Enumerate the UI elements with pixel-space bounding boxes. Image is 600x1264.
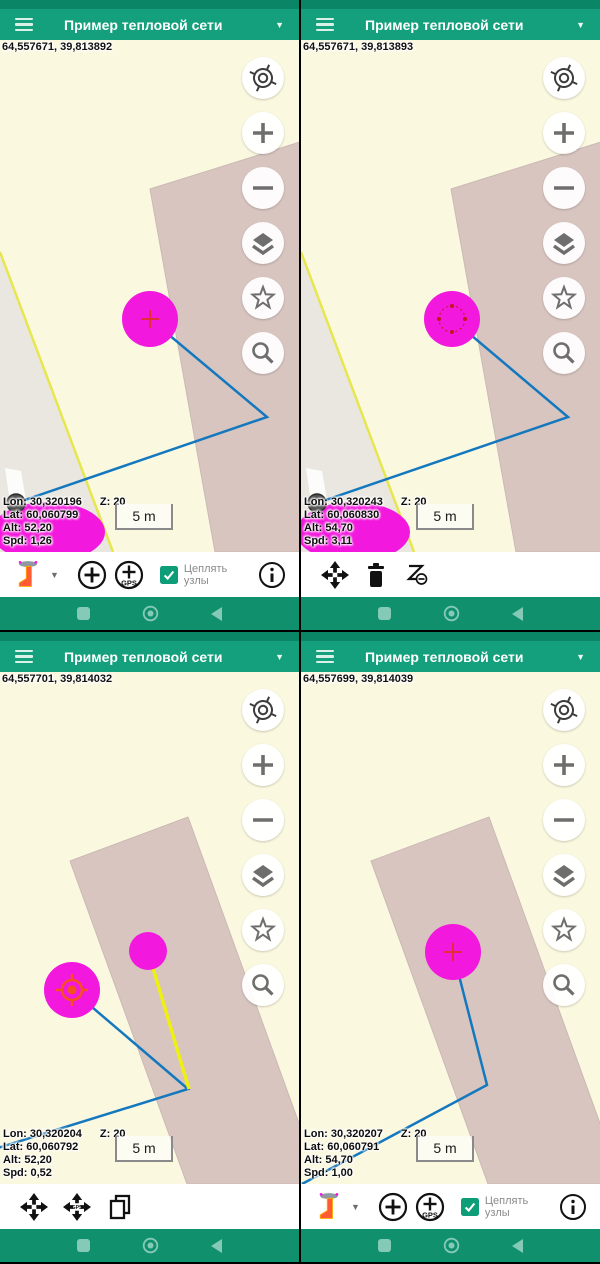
status-bar [301, 632, 600, 641]
lon-value: Lon: 30,320207 [304, 1128, 383, 1141]
edit-toolbar: ▼ GPS Цеплятьузлы [0, 552, 299, 597]
move-node-button[interactable] [321, 561, 349, 589]
app-bar: Пример тепловой сети ▼ [301, 641, 600, 672]
position-info: Lon: 30,320196Z: 20 Lat: 60,060799 Alt: … [3, 496, 126, 548]
my-location-button[interactable] [242, 57, 284, 99]
scale-bar: 5 m [115, 1136, 173, 1162]
app-title: Пример тепловой сети [365, 17, 576, 33]
speed-value: Spd: 3,11 [304, 535, 427, 548]
zoom-out-button[interactable] [543, 799, 585, 841]
lon-value: Lon: 30,320204 [3, 1128, 82, 1141]
menu-icon[interactable] [316, 650, 334, 664]
add-point-gps-button[interactable]: GPS [415, 1192, 445, 1222]
position-info: Lon: 30,320204Z: 20 Lat: 60,060792 Alt: … [3, 1128, 126, 1180]
nav-recents-button[interactable] [77, 607, 90, 620]
nav-home-button[interactable] [443, 605, 460, 622]
alt-value: Alt: 52,20 [3, 522, 126, 535]
add-point-gps-button[interactable]: GPS [114, 560, 144, 590]
map-controls [242, 57, 284, 374]
nav-back-button[interactable] [211, 1239, 222, 1253]
menu-icon[interactable] [15, 650, 33, 664]
layers-button[interactable] [543, 854, 585, 896]
alt-value: Alt: 52,20 [3, 1154, 126, 1167]
add-point-button[interactable] [378, 1192, 408, 1222]
layers-button[interactable] [543, 222, 585, 264]
layers-button[interactable] [242, 222, 284, 264]
lat-value: Lat: 60,060792 [3, 1141, 126, 1154]
delete-node-button[interactable] [364, 562, 388, 588]
map-view[interactable]: 64,557699, 39,814039 Lon: 30,320207Z: 20… [301, 672, 600, 1184]
selection-toolbar [301, 552, 600, 597]
layers-button[interactable] [242, 854, 284, 896]
svg-text:GPS: GPS [121, 578, 137, 587]
map-view[interactable]: 64,557671, 39,813892 Lon: 30,320196Z: 20… [0, 40, 299, 552]
move-toolbar: GPS [0, 1184, 299, 1229]
favorites-star-button[interactable] [543, 277, 585, 319]
position-info: Lon: 30,320243Z: 20 Lat: 60,060830 Alt: … [304, 496, 427, 548]
svg-text:GPS: GPS [72, 1205, 83, 1211]
map-view[interactable]: 64,557701, 39,814032 Lon: 30,320204Z: 20… [0, 672, 299, 1184]
nav-back-button[interactable] [512, 1239, 523, 1253]
search-button[interactable] [242, 964, 284, 1006]
move-node-button[interactable] [20, 1193, 48, 1221]
info-button[interactable] [258, 561, 286, 589]
favorites-star-button[interactable] [242, 909, 284, 951]
nav-back-button[interactable] [211, 607, 222, 621]
snap-nodes-checkbox[interactable] [160, 566, 178, 584]
search-button[interactable] [543, 964, 585, 1006]
search-button[interactable] [242, 332, 284, 374]
status-bar [0, 632, 299, 641]
nav-home-button[interactable] [443, 1237, 460, 1254]
lat-value: Lat: 60,060799 [3, 509, 126, 522]
my-location-button[interactable] [543, 57, 585, 99]
zoom-in-button[interactable] [242, 744, 284, 786]
lon-value: Lon: 30,320196 [3, 496, 82, 509]
nav-back-button[interactable] [512, 607, 523, 621]
app-bar: Пример тепловой сети ▼ [0, 641, 299, 672]
phone-panel-3: Пример тепловой сети ▼ 64,557701, 39,814… [0, 632, 299, 1262]
title-dropdown-icon[interactable]: ▼ [275, 652, 284, 662]
cursor-coordinates: 64,557671, 39,813893 [303, 41, 413, 53]
android-nav-bar [301, 597, 600, 630]
move-node-gps-button[interactable]: GPS [63, 1193, 91, 1221]
android-nav-bar [0, 597, 299, 630]
zoom-in-button[interactable] [543, 112, 585, 154]
app-title: Пример тепловой сети [365, 649, 576, 665]
scale-bar: 5 m [416, 1136, 474, 1162]
alt-value: Alt: 54,70 [304, 1154, 427, 1167]
speed-value: Spd: 0,52 [3, 1167, 126, 1180]
app-bar: Пример тепловой сети ▼ [301, 9, 600, 40]
lat-value: Lat: 60,060791 [304, 1141, 427, 1154]
nav-home-button[interactable] [142, 1237, 159, 1254]
phone-panel-2: Пример тепловой сети ▼ 64,557671, 39,813… [301, 0, 600, 630]
title-dropdown-icon[interactable]: ▼ [275, 20, 284, 30]
svg-text:GPS: GPS [422, 1210, 438, 1219]
app-title: Пример тепловой сети [64, 649, 275, 665]
cursor-coordinates: 64,557699, 39,814039 [303, 673, 413, 685]
title-dropdown-icon[interactable]: ▼ [576, 652, 585, 662]
map-view[interactable]: 64,557671, 39,813893 Lon: 30,320243Z: 20… [301, 40, 600, 552]
menu-icon[interactable] [316, 18, 334, 32]
zoom-out-button[interactable] [242, 167, 284, 209]
info-button[interactable] [559, 1193, 587, 1221]
snap-nodes-label: Цеплятьузлы [485, 1195, 528, 1219]
status-bar [0, 0, 299, 9]
nav-recents-button[interactable] [77, 1239, 90, 1252]
cursor-coordinates: 64,557671, 39,813892 [2, 41, 112, 53]
lon-value: Lon: 30,320243 [304, 496, 383, 509]
map-controls [242, 689, 284, 1006]
cursor-coordinates: 64,557701, 39,814032 [2, 673, 112, 685]
object-type-dropdown-icon[interactable]: ▼ [351, 1202, 360, 1212]
favorites-star-button[interactable] [543, 909, 585, 951]
snap-nodes-label: Цеплятьузлы [184, 563, 227, 587]
app-bar: Пример тепловой сети ▼ [0, 9, 299, 40]
scale-bar: 5 m [416, 504, 474, 530]
nav-recents-button[interactable] [378, 607, 391, 620]
nav-home-button[interactable] [142, 605, 159, 622]
zoom-out-button[interactable] [242, 799, 284, 841]
edit-toolbar: ▼ GPS Цеплятьузлы [301, 1184, 600, 1229]
alt-value: Alt: 54,70 [304, 522, 427, 535]
speed-value: Spd: 1,26 [3, 535, 126, 548]
menu-icon[interactable] [15, 18, 33, 32]
favorites-star-button[interactable] [242, 277, 284, 319]
add-point-button[interactable] [77, 560, 107, 590]
lat-value: Lat: 60,060830 [304, 509, 427, 522]
android-nav-bar [301, 1229, 600, 1262]
search-button[interactable] [543, 332, 585, 374]
object-type-dropdown-icon[interactable]: ▼ [50, 570, 59, 580]
title-dropdown-icon[interactable]: ▼ [576, 20, 585, 30]
phone-panel-4: Пример тепловой сети ▼ 64,557699, 39,814… [301, 632, 600, 1262]
hydrant-object-icon[interactable] [315, 1190, 343, 1224]
position-info: Lon: 30,320207Z: 20 Lat: 60,060791 Alt: … [304, 1128, 427, 1180]
map-controls [543, 57, 585, 374]
nav-recents-button[interactable] [378, 1239, 391, 1252]
zoom-out-button[interactable] [543, 167, 585, 209]
phone-panel-1: Пример тепловой сети ▼ 64,557671, 39,813… [0, 0, 299, 630]
screenshot-grid: Пример тепловой сети ▼ 64,557671, 39,813… [0, 0, 600, 1264]
remove-z-point-button[interactable] [403, 562, 430, 587]
speed-value: Spd: 1,00 [304, 1167, 427, 1180]
zoom-in-button[interactable] [242, 112, 284, 154]
app-title: Пример тепловой сети [64, 17, 275, 33]
copy-node-button[interactable] [106, 1193, 134, 1221]
map-controls [543, 689, 585, 1006]
status-bar [301, 0, 600, 9]
snap-nodes-checkbox[interactable] [461, 1198, 479, 1216]
hydrant-object-icon[interactable] [14, 558, 42, 592]
scale-bar: 5 m [115, 504, 173, 530]
android-nav-bar [0, 1229, 299, 1262]
zoom-in-button[interactable] [543, 744, 585, 786]
my-location-button[interactable] [242, 689, 284, 731]
my-location-button[interactable] [543, 689, 585, 731]
